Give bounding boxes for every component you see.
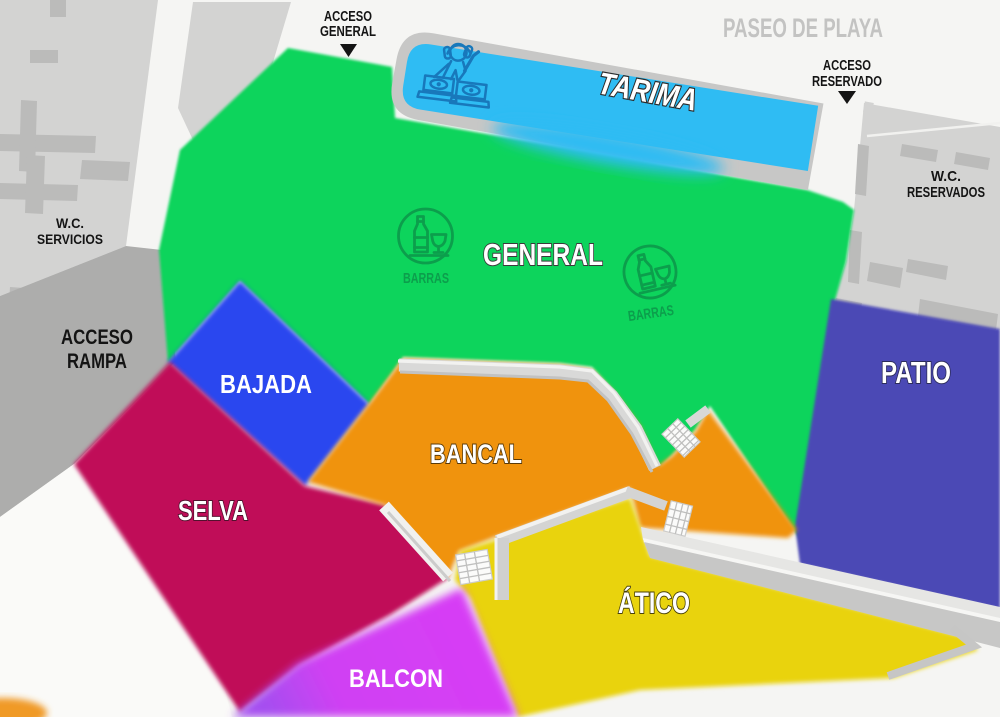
svg-text:BARRAS: BARRAS [403,271,449,287]
svg-text:PATIO: PATIO [881,355,951,390]
svg-text:ÁTICO: ÁTICO [618,586,690,620]
svg-text:W.C.: W.C. [56,216,84,231]
svg-text:BANCAL: BANCAL [430,439,522,469]
svg-text:RESERVADOS: RESERVADOS [907,184,985,201]
svg-text:RESERVADO: RESERVADO [812,74,882,90]
svg-text:SERVICIOS: SERVICIOS [37,232,103,247]
svg-text:PASEO DE PLAYA: PASEO DE PLAYA [723,13,883,43]
svg-text:RAMPA: RAMPA [67,350,127,373]
svg-text:W.C.: W.C. [931,168,961,185]
svg-text:ACCESO: ACCESO [823,58,871,74]
svg-text:ACCESO: ACCESO [324,9,372,25]
svg-text:BAJADA: BAJADA [220,369,312,399]
svg-text:SELVA: SELVA [178,495,248,526]
svg-text:GENERAL: GENERAL [320,24,376,40]
svg-text:BALCON: BALCON [349,665,443,693]
svg-text:ACCESO: ACCESO [61,326,133,349]
svg-text:GENERAL: GENERAL [483,237,603,272]
